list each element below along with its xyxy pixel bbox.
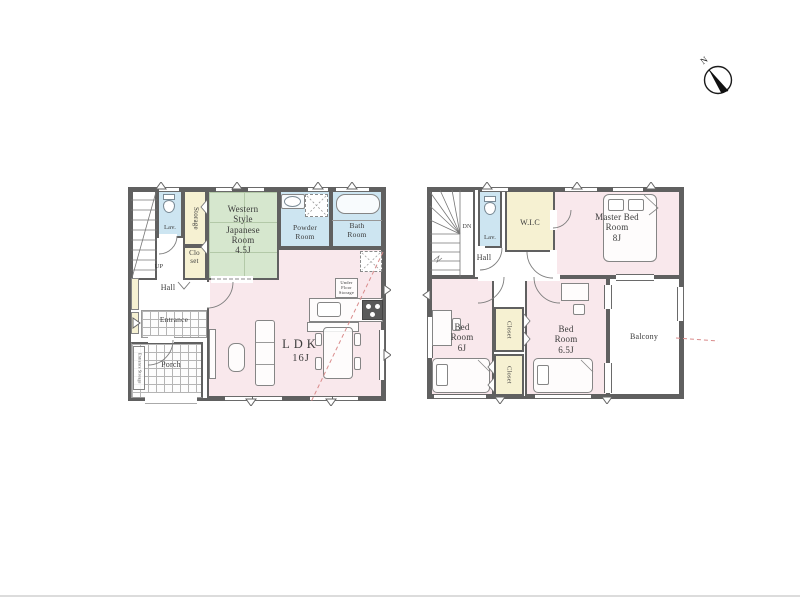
toilet-icon — [483, 196, 497, 215]
powder-room-label: Powder Room — [288, 224, 322, 241]
floor2-plan: DN Lav. W.I.C Hall Master Bed Room 8J Be… — [427, 187, 684, 399]
window — [613, 187, 643, 192]
porch-opening — [145, 393, 197, 404]
hall-label: Hall — [153, 283, 183, 292]
pillow — [608, 199, 624, 211]
window — [434, 394, 486, 399]
pillow — [537, 365, 549, 385]
master-bedroom-label: Master Bed Room 8J — [592, 212, 642, 243]
closet-b-label: Closet — [494, 355, 524, 395]
window — [677, 287, 684, 321]
desk — [561, 283, 589, 301]
window — [604, 285, 612, 309]
chair — [354, 333, 361, 346]
stairs-down-label: DN — [458, 224, 476, 231]
door-gap — [159, 234, 177, 240]
lavatory-label: Lav. — [478, 234, 502, 241]
staircase-down — [430, 190, 475, 277]
window — [253, 396, 282, 401]
toilet-icon — [162, 194, 176, 213]
japanese-room-label: Western Style Japanese Room 4.5J — [220, 204, 266, 255]
chair — [573, 304, 585, 315]
compass-icon: N — [696, 50, 740, 102]
wall-niche — [131, 312, 139, 334]
window — [216, 187, 232, 192]
room-name: Bed Room — [551, 324, 581, 345]
room-size: 4.5J — [220, 245, 266, 255]
window — [333, 396, 358, 401]
room-name: Bed Room — [447, 322, 477, 343]
stove-icon — [362, 300, 383, 320]
chair — [354, 357, 361, 370]
entrance-label: Entrance — [154, 316, 194, 325]
stairs-up-label: UP — [147, 263, 171, 270]
door-gap — [550, 250, 557, 276]
room-name: Master Bed Room — [592, 212, 642, 233]
room-size: 6J — [447, 343, 477, 353]
bath-room-label: Bath Room — [340, 222, 374, 239]
bedroom-6j-label: Bed Room 6J — [447, 322, 477, 353]
storage-label: Storage — [183, 192, 207, 244]
door-gap — [204, 282, 210, 308]
window — [616, 274, 654, 281]
lavatory-label: Lav. — [157, 224, 183, 231]
pillow — [436, 364, 448, 386]
wall-niche — [131, 278, 139, 310]
entrance-storage-label: Entrance Storage — [133, 347, 145, 389]
window — [482, 187, 508, 192]
bathtub-icon — [336, 194, 380, 214]
kitchen-sink — [317, 302, 341, 317]
room-size: 8J — [592, 233, 642, 243]
window — [310, 396, 332, 401]
tv-board — [209, 329, 216, 379]
sink-basin-icon — [284, 196, 301, 207]
under-floor-storage-label: Under Floor Storage — [336, 280, 357, 296]
window — [225, 396, 252, 401]
hall-label: Hall — [470, 253, 498, 262]
compass-north-label: N — [698, 54, 710, 66]
washing-machine — [305, 194, 328, 217]
window — [159, 187, 179, 192]
door-gap — [211, 276, 253, 283]
bedroom-65j-label: Bed Room 6.5J — [551, 324, 581, 355]
door-gap — [478, 274, 560, 281]
closet-a-label: Closet — [494, 308, 524, 351]
floor1-plan: UP Lav. Storage Closet Western Style Jap… — [128, 187, 386, 401]
window — [248, 187, 264, 192]
floorplan-canvas: UP Lav. Storage Closet Western Style Jap… — [0, 0, 800, 600]
ldk-label: LDK — [269, 337, 333, 351]
window — [565, 187, 597, 192]
window — [336, 187, 369, 192]
window — [379, 330, 385, 380]
room-name: Western Style Japanese Room — [220, 204, 266, 245]
window — [308, 187, 328, 192]
coffee-table — [228, 343, 245, 372]
door-gap — [148, 336, 174, 343]
ldk-size-label: 16J — [269, 353, 333, 365]
closet-label: Closet — [188, 250, 201, 266]
pillow — [628, 199, 644, 211]
balcony-label: Balcony — [619, 332, 669, 341]
section-line — [676, 338, 718, 341]
room-size: 6.5J — [551, 345, 581, 355]
footer-divider — [0, 595, 800, 597]
porch-label: Porch — [153, 360, 189, 369]
wic-label: W.I.C — [505, 218, 555, 227]
appliance-space — [360, 251, 382, 272]
window — [535, 394, 591, 399]
window — [604, 363, 612, 393]
